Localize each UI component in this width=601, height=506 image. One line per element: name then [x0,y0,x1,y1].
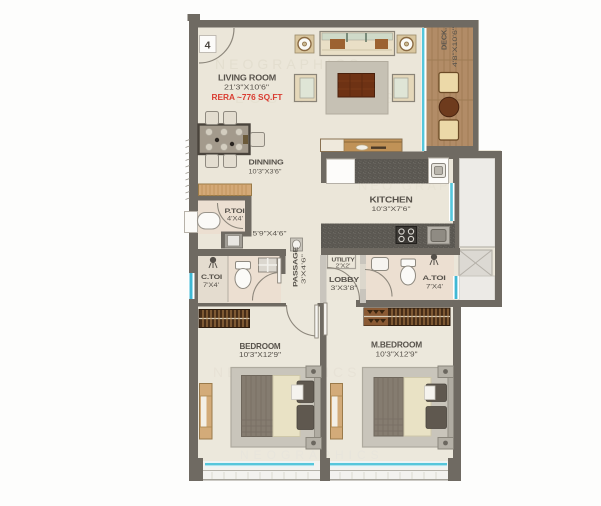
svg-text:M.BEDROOM: M.BEDROOM [371,340,422,350]
svg-text:RERA ~776 SQ.FT: RERA ~776 SQ.FT [212,92,284,102]
svg-text:3'X3'8": 3'X3'8" [331,285,359,292]
svg-text:C.TOI: C.TOI [201,274,222,281]
svg-text:DECK.: DECK. [440,28,449,50]
svg-text:LIVING ROOM: LIVING ROOM [218,73,276,83]
svg-text:10'3"X7'6": 10'3"X7'6" [372,206,412,213]
svg-text:PASSAGE: PASSAGE [293,246,300,287]
svg-text:7'X4': 7'X4' [203,282,219,289]
svg-text:BEDROOM: BEDROOM [240,341,281,351]
svg-text:10'3"X3'6": 10'3"X3'6" [249,169,282,176]
svg-text:A.TOI: A.TOI [423,275,447,282]
svg-text:4'X4': 4'X4' [227,217,243,223]
svg-text:4: 4 [205,40,211,52]
svg-text:10'3"X12'9": 10'3"X12'9" [239,352,282,359]
svg-text:2'X2': 2'X2' [336,264,351,270]
svg-text:7'X4': 7'X4' [426,284,443,291]
svg-text:KITCHEN: KITCHEN [370,196,414,205]
svg-text:10'3"X12'9": 10'3"X12'9" [376,352,419,359]
svg-text:NEOGRAPHICS: NEOGRAPHICS [240,448,384,462]
svg-text:5'9"X4'6": 5'9"X4'6" [253,231,288,238]
svg-text:DINNING: DINNING [249,158,284,167]
svg-text:3'X4'6": 3'X4'6" [302,254,308,284]
svg-text:P.TOI: P.TOI [225,208,246,215]
svg-text:21'3"X10'6": 21'3"X10'6" [224,85,270,92]
svg-text:LOBBY: LOBBY [329,275,359,284]
svg-text:4'8"X10'6": 4'8"X10'6" [452,27,459,67]
